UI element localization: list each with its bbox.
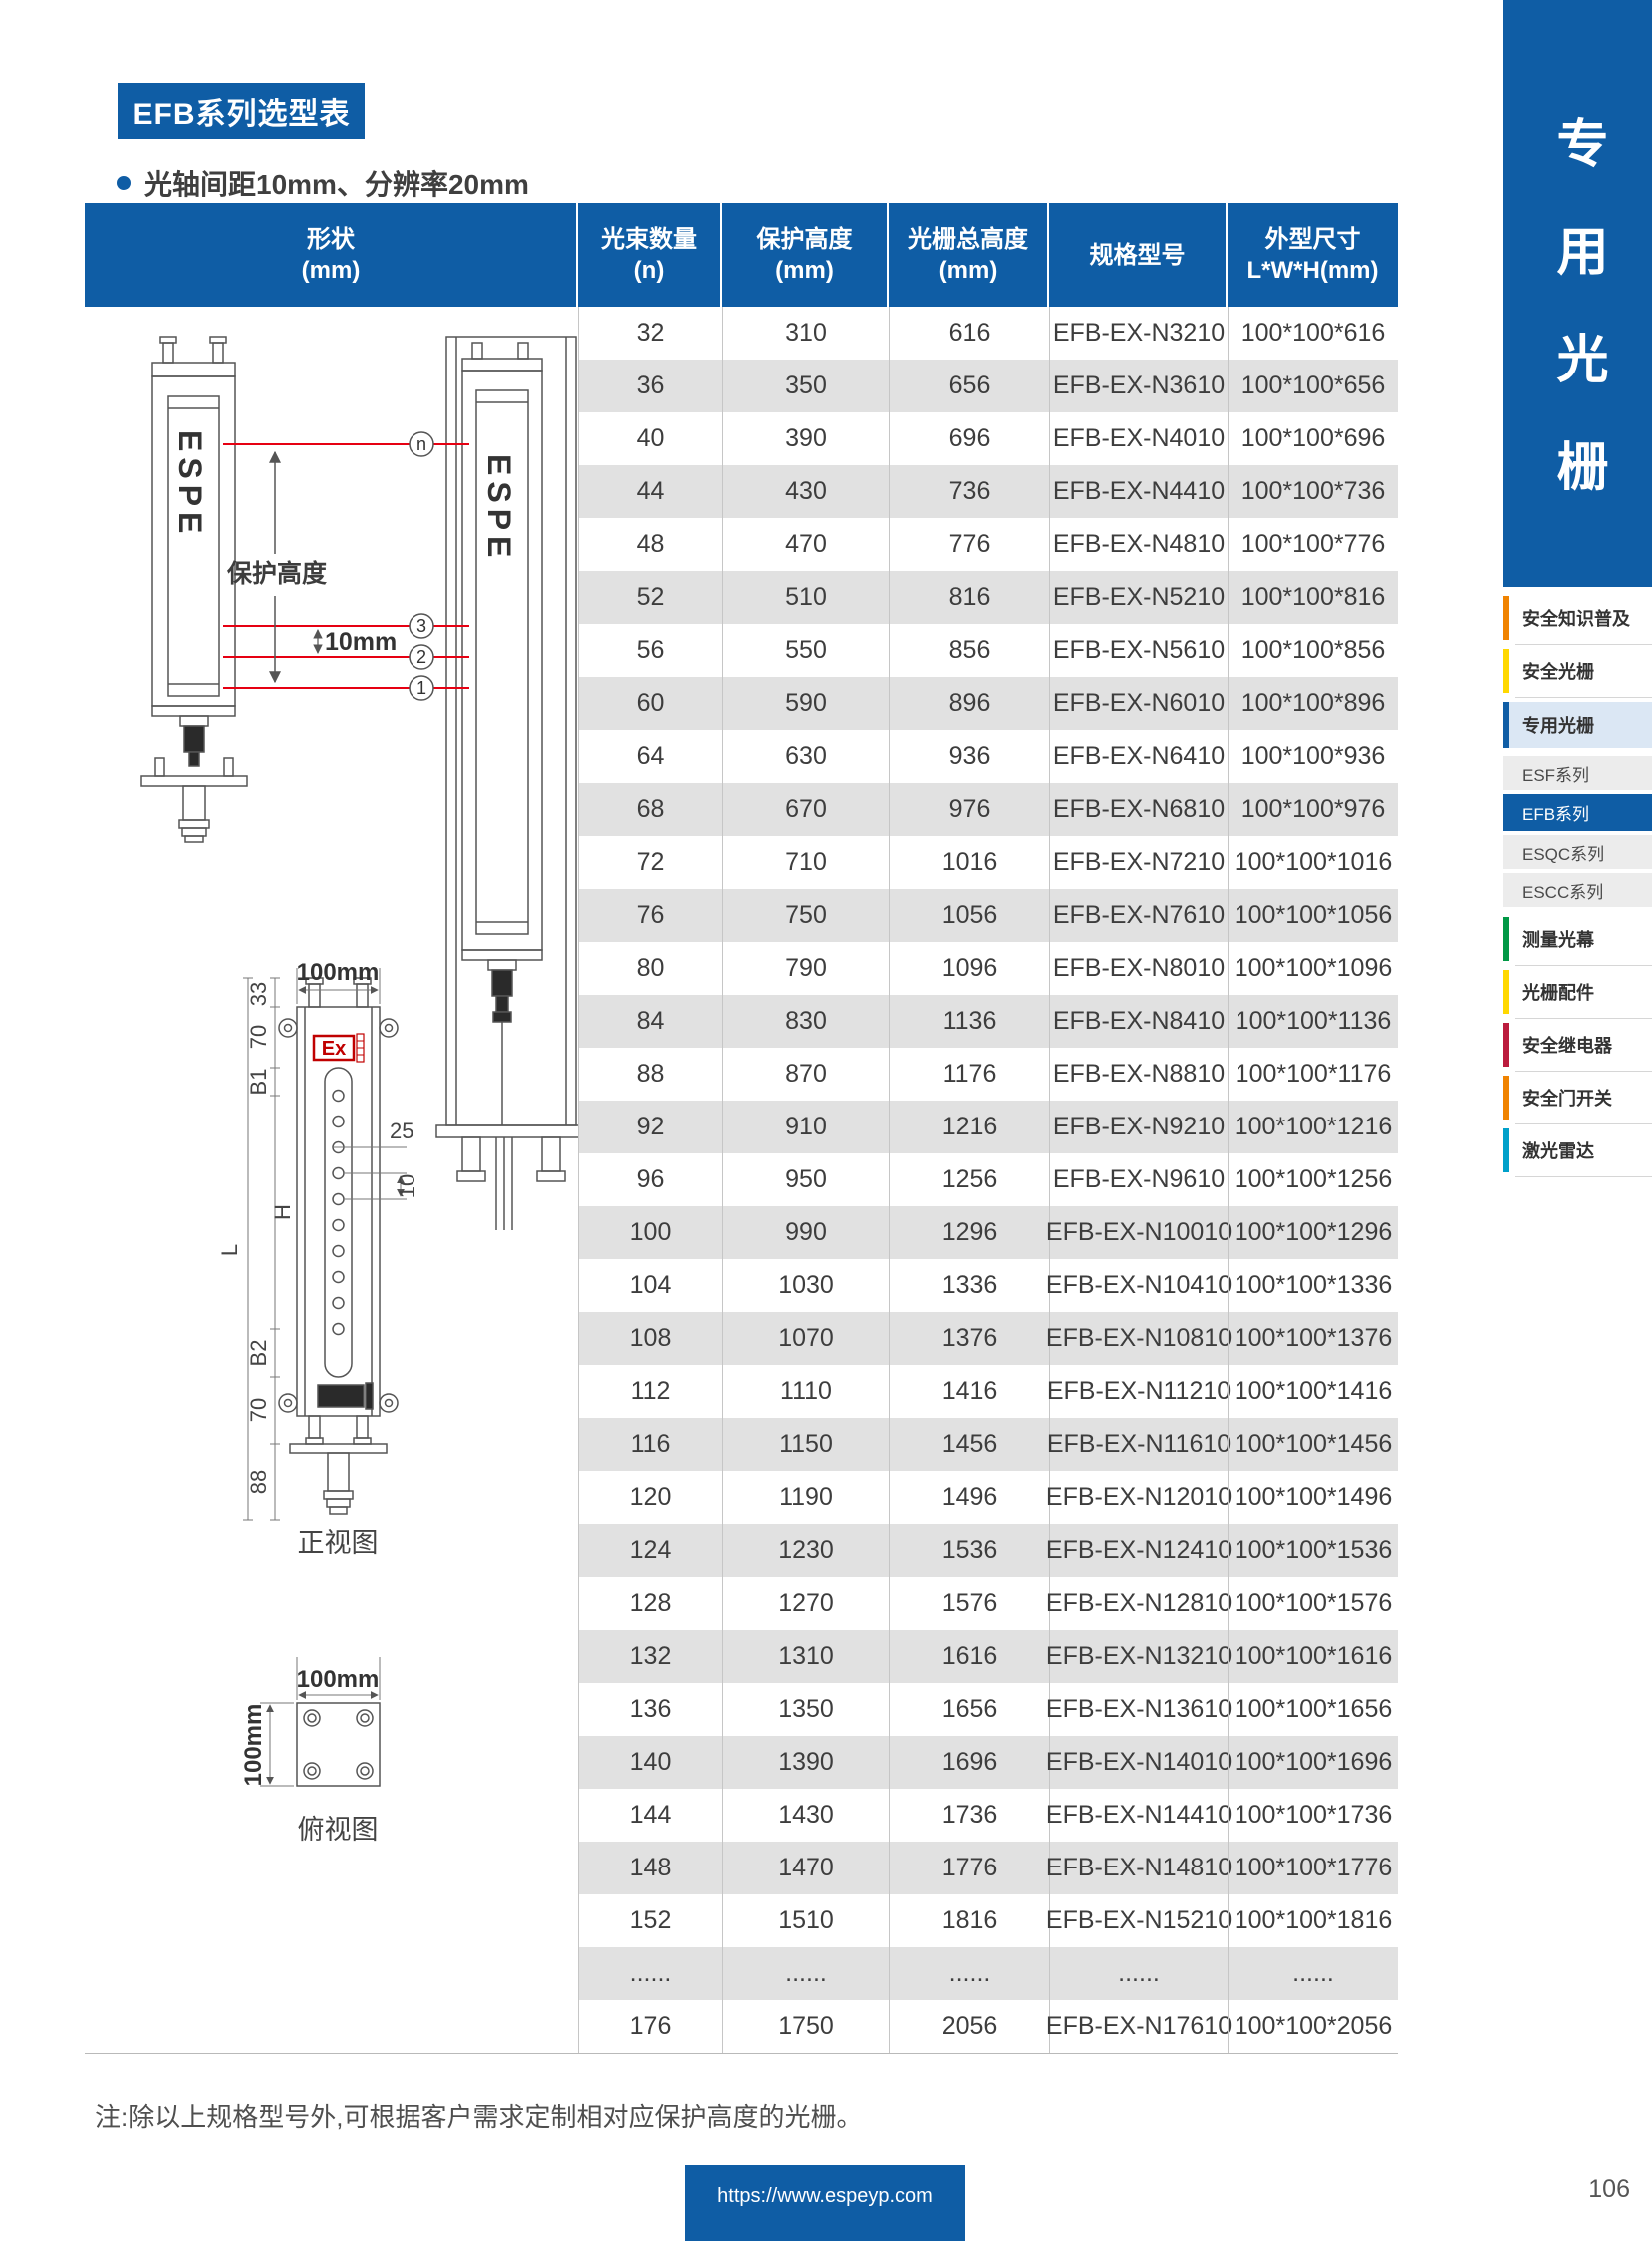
col-header-text: 形状: [307, 224, 355, 255]
sidebar-item-3[interactable]: ESF系列: [1503, 756, 1652, 790]
table-cell: EFB-EX-N7210: [1049, 836, 1228, 889]
table-cell: 100*100*1336: [1228, 1259, 1398, 1312]
table-row: 44430736EFB-EX-N4410100*100*736: [578, 465, 1398, 518]
beam-index-labels: n 3 2 1: [410, 432, 433, 700]
table-cell: 470: [722, 518, 889, 571]
sidebar-item-label: 测量光幕: [1522, 926, 1594, 952]
col-header-unit: (mm): [775, 255, 834, 286]
table-cell: 1816: [889, 1894, 1049, 1947]
front-view-caption: 正视图: [298, 1528, 379, 1558]
table-cell: 120: [578, 1471, 722, 1524]
table-cell: 76: [578, 889, 722, 942]
table-cell: ......: [1049, 1947, 1228, 2000]
table-cell: EFB-EX-N8810: [1049, 1048, 1228, 1101]
table-cell: 32: [578, 307, 722, 360]
table-cell: 60: [578, 677, 722, 730]
table-cell: EFB-EX-N14810: [1049, 1842, 1228, 1894]
table-row: 52510816EFB-EX-N5210100*100*816: [578, 571, 1398, 624]
col-header-text: 光栅总高度: [908, 224, 1028, 255]
table-cell: 116: [578, 1418, 722, 1471]
table-cell: 100*100*1776: [1228, 1842, 1398, 1894]
table-cell: 816: [889, 571, 1049, 624]
table-body-rows: 32310616EFB-EX-N3210100*100*61636350656E…: [578, 307, 1398, 2053]
table-cell: 976: [889, 783, 1049, 836]
table-cell: 670: [722, 783, 889, 836]
table-cell: 100*100*936: [1228, 730, 1398, 783]
sidebar-item-label: 安全知识普及: [1522, 605, 1630, 631]
table-row: 11211101416EFB-EX-N11210100*100*1416: [578, 1365, 1398, 1418]
table-cell: 936: [889, 730, 1049, 783]
table-cell: 136: [578, 1683, 722, 1736]
table-row: ..............................: [578, 1947, 1398, 2000]
sidebar-item-label: ESQC系列: [1522, 840, 1604, 865]
table-cell: 100*100*736: [1228, 465, 1398, 518]
table-cell: 510: [722, 571, 889, 624]
table-cell: 140: [578, 1736, 722, 1789]
table-cell: 1536: [889, 1524, 1049, 1577]
table-cell: 68: [578, 783, 722, 836]
table-cell: EFB-EX-N10010: [1049, 1206, 1228, 1259]
table-cell: 128: [578, 1577, 722, 1630]
table-cell: 1136: [889, 995, 1049, 1048]
table-cell: 1336: [889, 1259, 1049, 1312]
subtitle-text: 光轴间距10mm、分辨率20mm: [144, 163, 529, 203]
table-cell: 350: [722, 360, 889, 412]
dim-h: H: [270, 1204, 295, 1220]
dim-l: L: [217, 1244, 242, 1256]
sidebar-item-5[interactable]: ESQC系列: [1503, 835, 1652, 869]
selection-table: 形状 (mm) 光束数量 (n) 保护高度 (mm) 光栅总高度 (mm) 规格…: [85, 203, 1398, 2054]
table-cell: 100*100*616: [1228, 307, 1398, 360]
table-cell: 124: [578, 1524, 722, 1577]
table-cell: 1736: [889, 1789, 1049, 1842]
table-cell: 100*100*856: [1228, 624, 1398, 677]
table-cell: 100*100*1496: [1228, 1471, 1398, 1524]
table-cell: 1456: [889, 1418, 1049, 1471]
table-cell: 108: [578, 1312, 722, 1365]
shape-diagrams: ESPE ESPE n 3 2 1: [85, 307, 578, 2053]
table-cell: EFB-EX-N8410: [1049, 995, 1228, 1048]
table-cell: 1776: [889, 1842, 1049, 1894]
sidebar-item-label: EFB系列: [1522, 800, 1589, 825]
table-cell: 100*100*1736: [1228, 1789, 1398, 1842]
col-header-text: 外型尺寸: [1265, 224, 1361, 255]
table-cell: 92: [578, 1101, 722, 1153]
table-row: 14013901696EFB-EX-N14010100*100*1696: [578, 1736, 1398, 1789]
table-row: 10410301336EFB-EX-N10410100*100*1336: [578, 1259, 1398, 1312]
table-cell: 616: [889, 307, 1049, 360]
sidebar-item-11[interactable]: 激光雷达: [1503, 1128, 1652, 1172]
table-cell: EFB-EX-N9210: [1049, 1101, 1228, 1153]
table-cell: 550: [722, 624, 889, 677]
table-cell: 100*100*1056: [1228, 889, 1398, 942]
table-cell: 100: [578, 1206, 722, 1259]
table-cell: 1750: [722, 2000, 889, 2053]
table-row: 17617502056EFB-EX-N17610100*100*2056: [578, 2000, 1398, 2053]
table-cell: 1576: [889, 1577, 1049, 1630]
table-row: 11611501456EFB-EX-N11610100*100*1456: [578, 1418, 1398, 1471]
table-cell: 590: [722, 677, 889, 730]
sidebar-item-label: 光栅配件: [1522, 979, 1594, 1005]
dim-25: 25: [390, 1119, 413, 1143]
table-cell: 152: [578, 1894, 722, 1947]
table-row: 32310616EFB-EX-N3210100*100*616: [578, 307, 1398, 360]
top-view-caption: 俯视图: [298, 1815, 379, 1845]
table-cell: 100*100*696: [1228, 412, 1398, 465]
dim-70-bottom: 70: [246, 1398, 271, 1422]
sidebar-item-10[interactable]: 安全门开关: [1503, 1076, 1652, 1120]
table-cell: EFB-EX-N9610: [1049, 1153, 1228, 1206]
table-cell: EFB-EX-N13610: [1049, 1683, 1228, 1736]
table-cell: EFB-EX-N12410: [1049, 1524, 1228, 1577]
table-cell: EFB-EX-N11610: [1049, 1418, 1228, 1471]
table-cell: 830: [722, 995, 889, 1048]
nav-accent-bar: [1503, 649, 1509, 693]
table-cell: 1696: [889, 1736, 1049, 1789]
table-row: 10810701376EFB-EX-N10810100*100*1376: [578, 1312, 1398, 1365]
footer-url-box[interactable]: https://www.espeyp.com: [685, 2165, 965, 2241]
table-row: 13213101616EFB-EX-N13210100*100*1616: [578, 1630, 1398, 1683]
table-cell: 1096: [889, 942, 1049, 995]
table-cell: 100*100*1616: [1228, 1630, 1398, 1683]
table-cell: EFB-EX-N6410: [1049, 730, 1228, 783]
table-cell: 310: [722, 307, 889, 360]
table-row: 807901096EFB-EX-N8010100*100*1096: [578, 942, 1398, 995]
table-row: 14814701776EFB-EX-N14810100*100*1776: [578, 1842, 1398, 1894]
table-header-row: 形状 (mm) 光束数量 (n) 保护高度 (mm) 光栅总高度 (mm) 规格…: [85, 203, 1398, 307]
table-cell: 40: [578, 412, 722, 465]
table-cell: 1230: [722, 1524, 889, 1577]
ex-mark: Ex: [322, 1038, 346, 1060]
table-cell: 88: [578, 1048, 722, 1101]
sidebar-item-7[interactable]: 测量光幕: [1503, 917, 1652, 961]
col-header-unit: (mm): [939, 255, 998, 286]
table-cell: 100*100*1816: [1228, 1894, 1398, 1947]
table-cell: ......: [1228, 1947, 1398, 2000]
table-cell: 910: [722, 1101, 889, 1153]
page-number: 106: [1570, 2175, 1630, 2204]
table-cell: 100*100*1296: [1228, 1206, 1398, 1259]
table-cell: 710: [722, 836, 889, 889]
table-cell: EFB-EX-N4410: [1049, 465, 1228, 518]
table-cell: 176: [578, 2000, 722, 2053]
table-cell: ......: [578, 1947, 722, 2000]
table-cell: 990: [722, 1206, 889, 1259]
table-cell: 950: [722, 1153, 889, 1206]
front-width-label: 100mm: [297, 959, 380, 986]
table-cell: 1190: [722, 1471, 889, 1524]
table-cell: 1376: [889, 1312, 1049, 1365]
table-cell: 100*100*1536: [1228, 1524, 1398, 1577]
bullet-icon: [117, 176, 131, 190]
sidebar-item-4[interactable]: EFB系列: [1503, 794, 1652, 831]
table-cell: 856: [889, 624, 1049, 677]
sidebar-item-label: ESCC系列: [1522, 878, 1603, 903]
col-header-total-height: 光栅总高度 (mm): [889, 203, 1049, 307]
table-cell: 100*100*1656: [1228, 1683, 1398, 1736]
table-cell: 1070: [722, 1312, 889, 1365]
table-cell: 1296: [889, 1206, 1049, 1259]
table-cell: EFB-EX-N11210: [1049, 1365, 1228, 1418]
table-row: 767501056EFB-EX-N7610100*100*1056: [578, 889, 1398, 942]
nav-accent-bar: [1503, 970, 1509, 1014]
table-cell: 84: [578, 995, 722, 1048]
table-row: 40390696EFB-EX-N4010100*100*696: [578, 412, 1398, 465]
col-header-text: 保护高度: [757, 224, 853, 255]
table-cell: 44: [578, 465, 722, 518]
table-row: 1009901296EFB-EX-N10010100*100*1296: [578, 1206, 1398, 1259]
table-cell: 790: [722, 942, 889, 995]
nav-accent-bar: [1503, 702, 1509, 748]
table-cell: 1430: [722, 1789, 889, 1842]
table-row: 13613501656EFB-EX-N13610100*100*1656: [578, 1683, 1398, 1736]
table-row: 727101016EFB-EX-N7210100*100*1016: [578, 836, 1398, 889]
section-banner-title: 专用光栅: [1540, 116, 1615, 587]
table-cell: 750: [722, 889, 889, 942]
sidebar-item-8[interactable]: 光栅配件: [1503, 970, 1652, 1014]
table-cell: 100*100*1376: [1228, 1312, 1398, 1365]
table-cell: 104: [578, 1259, 722, 1312]
footnote: 注:除以上规格型号外,可根据客户需求定制相对应保护高度的光栅。: [95, 2097, 862, 2134]
table-cell: EFB-EX-N5210: [1049, 571, 1228, 624]
table-cell: 96: [578, 1153, 722, 1206]
top-view-drawing: [297, 1703, 380, 1786]
table-cell: 100*100*1096: [1228, 942, 1398, 995]
table-row: 888701176EFB-EX-N8810100*100*1176: [578, 1048, 1398, 1101]
table-row: 60590896EFB-EX-N6010100*100*896: [578, 677, 1398, 730]
sidebar-item-label: 安全光栅: [1522, 658, 1594, 684]
dim-33: 33: [246, 982, 271, 1006]
table-cell: EFB-EX-N6010: [1049, 677, 1228, 730]
sidebar-item-label: ESF系列: [1522, 761, 1589, 786]
sidebar-item-label: 安全继电器: [1522, 1032, 1612, 1058]
nav-accent-bar: [1503, 596, 1509, 640]
dim-88: 88: [246, 1470, 271, 1494]
col-header-unit: (n): [634, 255, 665, 286]
table-cell: 100*100*1416: [1228, 1365, 1398, 1418]
top-width-label: 100mm: [297, 1666, 380, 1693]
table-cell: EFB-EX-N14410: [1049, 1789, 1228, 1842]
table-cell: 656: [889, 360, 1049, 412]
sidebar-item-label: 专用光栅: [1522, 712, 1594, 738]
table-row: 12412301536EFB-EX-N12410100*100*1536: [578, 1524, 1398, 1577]
table-cell: EFB-EX-N7610: [1049, 889, 1228, 942]
brand-label: ESPE: [172, 430, 208, 539]
table-cell: 100*100*1016: [1228, 836, 1398, 889]
subtitle-line: 光轴间距10mm、分辨率20mm: [117, 163, 529, 203]
dim-b2: B2: [246, 1340, 271, 1367]
table-cell: 112: [578, 1365, 722, 1418]
beam-label-n: n: [416, 434, 426, 454]
table-cell: 100*100*1256: [1228, 1153, 1398, 1206]
table-cell: 1496: [889, 1471, 1049, 1524]
table-cell: ......: [722, 1947, 889, 2000]
sidebar-item-2[interactable]: 专用光栅: [1503, 702, 1652, 748]
table-cell: 100*100*1696: [1228, 1736, 1398, 1789]
table-cell: EFB-EX-N6810: [1049, 783, 1228, 836]
table-row: 969501256EFB-EX-N9610100*100*1256: [578, 1153, 1398, 1206]
table-cell: 430: [722, 465, 889, 518]
table-cell: EFB-EX-N4810: [1049, 518, 1228, 571]
table-cell: EFB-EX-N3610: [1049, 360, 1228, 412]
col-header-text: 规格型号: [1090, 240, 1186, 271]
col-header-shape: 形状 (mm): [85, 203, 578, 307]
footer-url[interactable]: https://www.espeyp.com: [717, 2185, 933, 2241]
col-header-protection-height: 保护高度 (mm): [722, 203, 889, 307]
protection-height-label: 保护高度: [226, 559, 327, 588]
sidebar-item-0[interactable]: 安全知识普及: [1503, 596, 1652, 640]
table-cell: 1016: [889, 836, 1049, 889]
table-cell: 1350: [722, 1683, 889, 1736]
col-header-unit: (mm): [302, 255, 361, 286]
table-cell: 696: [889, 412, 1049, 465]
table-cell: EFB-EX-N12010: [1049, 1471, 1228, 1524]
sidebar-item-6[interactable]: ESCC系列: [1503, 873, 1652, 907]
dim-10: 10: [395, 1174, 419, 1198]
table-cell: EFB-EX-N10410: [1049, 1259, 1228, 1312]
dim-b1: B1: [246, 1069, 271, 1096]
table-cell: 100*100*1216: [1228, 1101, 1398, 1153]
table-cell: 1150: [722, 1418, 889, 1471]
table-cell: 1510: [722, 1894, 889, 1947]
table-cell: 630: [722, 730, 889, 783]
table-cell: 144: [578, 1789, 722, 1842]
table-cell: 1616: [889, 1630, 1049, 1683]
table-cell: 48: [578, 518, 722, 571]
nav-accent-bar: [1503, 1023, 1509, 1067]
table-cell: 80: [578, 942, 722, 995]
table-cell: 100*100*1176: [1228, 1048, 1398, 1101]
table-cell: 100*100*976: [1228, 783, 1398, 836]
beam-label-1: 1: [416, 678, 426, 698]
table-cell: 736: [889, 465, 1049, 518]
section-banner: 专用光栅: [1503, 0, 1652, 587]
table-cell: ......: [889, 1947, 1049, 2000]
table-cell: 1390: [722, 1736, 889, 1789]
table-cell: 1310: [722, 1630, 889, 1683]
table-cell: 776: [889, 518, 1049, 571]
table-cell: 2056: [889, 2000, 1049, 2053]
nav-accent-bar: [1503, 1128, 1509, 1172]
table-cell: 870: [722, 1048, 889, 1101]
table-row: 48470776EFB-EX-N4810100*100*776: [578, 518, 1398, 571]
table-cell: 100*100*896: [1228, 677, 1398, 730]
table-cell: 72: [578, 836, 722, 889]
table-cell: EFB-EX-N12810: [1049, 1577, 1228, 1630]
table-row: 36350656EFB-EX-N3610100*100*656: [578, 360, 1398, 412]
nav-accent-bar: [1503, 1076, 1509, 1120]
sidebar-item-label: 安全门开关: [1522, 1085, 1612, 1111]
table-cell: EFB-EX-N17610: [1049, 2000, 1228, 2053]
table-cell: EFB-EX-N10810: [1049, 1312, 1228, 1365]
table-cell: 100*100*2056: [1228, 2000, 1398, 2053]
table-cell: 36: [578, 360, 722, 412]
table-cell: 100*100*1136: [1228, 995, 1398, 1048]
pitch-label: 10mm: [325, 628, 397, 656]
col-header-dimensions: 外型尺寸 L*W*H(mm): [1228, 203, 1398, 307]
nav-accent-bar: [1503, 917, 1509, 961]
beam-label-2: 2: [416, 647, 426, 667]
table-row: 929101216EFB-EX-N9210100*100*1216: [578, 1101, 1398, 1153]
table-row: 15215101816EFB-EX-N15210100*100*1816: [578, 1894, 1398, 1947]
table-cell: 1256: [889, 1153, 1049, 1206]
table-cell: 64: [578, 730, 722, 783]
table-cell: 1056: [889, 889, 1049, 942]
table-cell: EFB-EX-N13210: [1049, 1630, 1228, 1683]
table-cell: EFB-EX-N5610: [1049, 624, 1228, 677]
col-header-unit: L*W*H(mm): [1247, 255, 1379, 286]
table-row: 12011901496EFB-EX-N12010100*100*1496: [578, 1471, 1398, 1524]
table-row: 12812701576EFB-EX-N12810100*100*1576: [578, 1577, 1398, 1630]
table-cell: 1110: [722, 1365, 889, 1418]
table-cell: 132: [578, 1630, 722, 1683]
table-row: 64630936EFB-EX-N6410100*100*936: [578, 730, 1398, 783]
table-cell: EFB-EX-N8010: [1049, 942, 1228, 995]
table-cell: 1656: [889, 1683, 1049, 1736]
sidebar-item-label: 激光雷达: [1522, 1137, 1594, 1163]
table-cell: 1416: [889, 1365, 1049, 1418]
shape-diagrams-cell: ESPE ESPE n 3 2 1: [85, 307, 578, 2053]
table-cell: 1030: [722, 1259, 889, 1312]
table-cell: EFB-EX-N3210: [1049, 307, 1228, 360]
table-cell: 100*100*776: [1228, 518, 1398, 571]
col-header-text: 光束数量: [601, 224, 697, 255]
table-row: 68670976EFB-EX-N6810100*100*976: [578, 783, 1398, 836]
table-cell: 100*100*1456: [1228, 1418, 1398, 1471]
sidebar-nav: 安全知识普及安全光栅专用光栅ESF系列EFB系列ESQC系列ESCC系列测量光幕…: [1503, 596, 1652, 1181]
table-cell: EFB-EX-N4010: [1049, 412, 1228, 465]
top-height-label: 100mm: [240, 1704, 267, 1787]
dim-70-top: 70: [246, 1025, 271, 1049]
table-cell: 100*100*1576: [1228, 1577, 1398, 1630]
table-cell: 1270: [722, 1577, 889, 1630]
page-title: EFB系列选型表: [118, 83, 365, 139]
beam-label-3: 3: [416, 616, 426, 636]
sidebar-item-1[interactable]: 安全光栅: [1503, 649, 1652, 693]
sidebar-item-9[interactable]: 安全继电器: [1503, 1023, 1652, 1067]
table-cell: 56: [578, 624, 722, 677]
col-header-model: 规格型号: [1049, 203, 1228, 307]
table-cell: EFB-EX-N15210: [1049, 1894, 1228, 1947]
table-cell: 1176: [889, 1048, 1049, 1101]
table-row: 848301136EFB-EX-N8410100*100*1136: [578, 995, 1398, 1048]
col-header-beam-count: 光束数量 (n): [578, 203, 722, 307]
table-cell: 52: [578, 571, 722, 624]
brand-label: ESPE: [481, 454, 517, 563]
table-body: ESPE ESPE n 3 2 1: [85, 307, 1398, 2054]
table-cell: 896: [889, 677, 1049, 730]
table-cell: 1470: [722, 1842, 889, 1894]
table-cell: 100*100*816: [1228, 571, 1398, 624]
table-cell: 390: [722, 412, 889, 465]
table-cell: 148: [578, 1842, 722, 1894]
table-cell: 1216: [889, 1101, 1049, 1153]
table-cell: EFB-EX-N14010: [1049, 1736, 1228, 1789]
table-row: 56550856EFB-EX-N5610100*100*856: [578, 624, 1398, 677]
table-cell: 100*100*656: [1228, 360, 1398, 412]
table-row: 14414301736EFB-EX-N14410100*100*1736: [578, 1789, 1398, 1842]
